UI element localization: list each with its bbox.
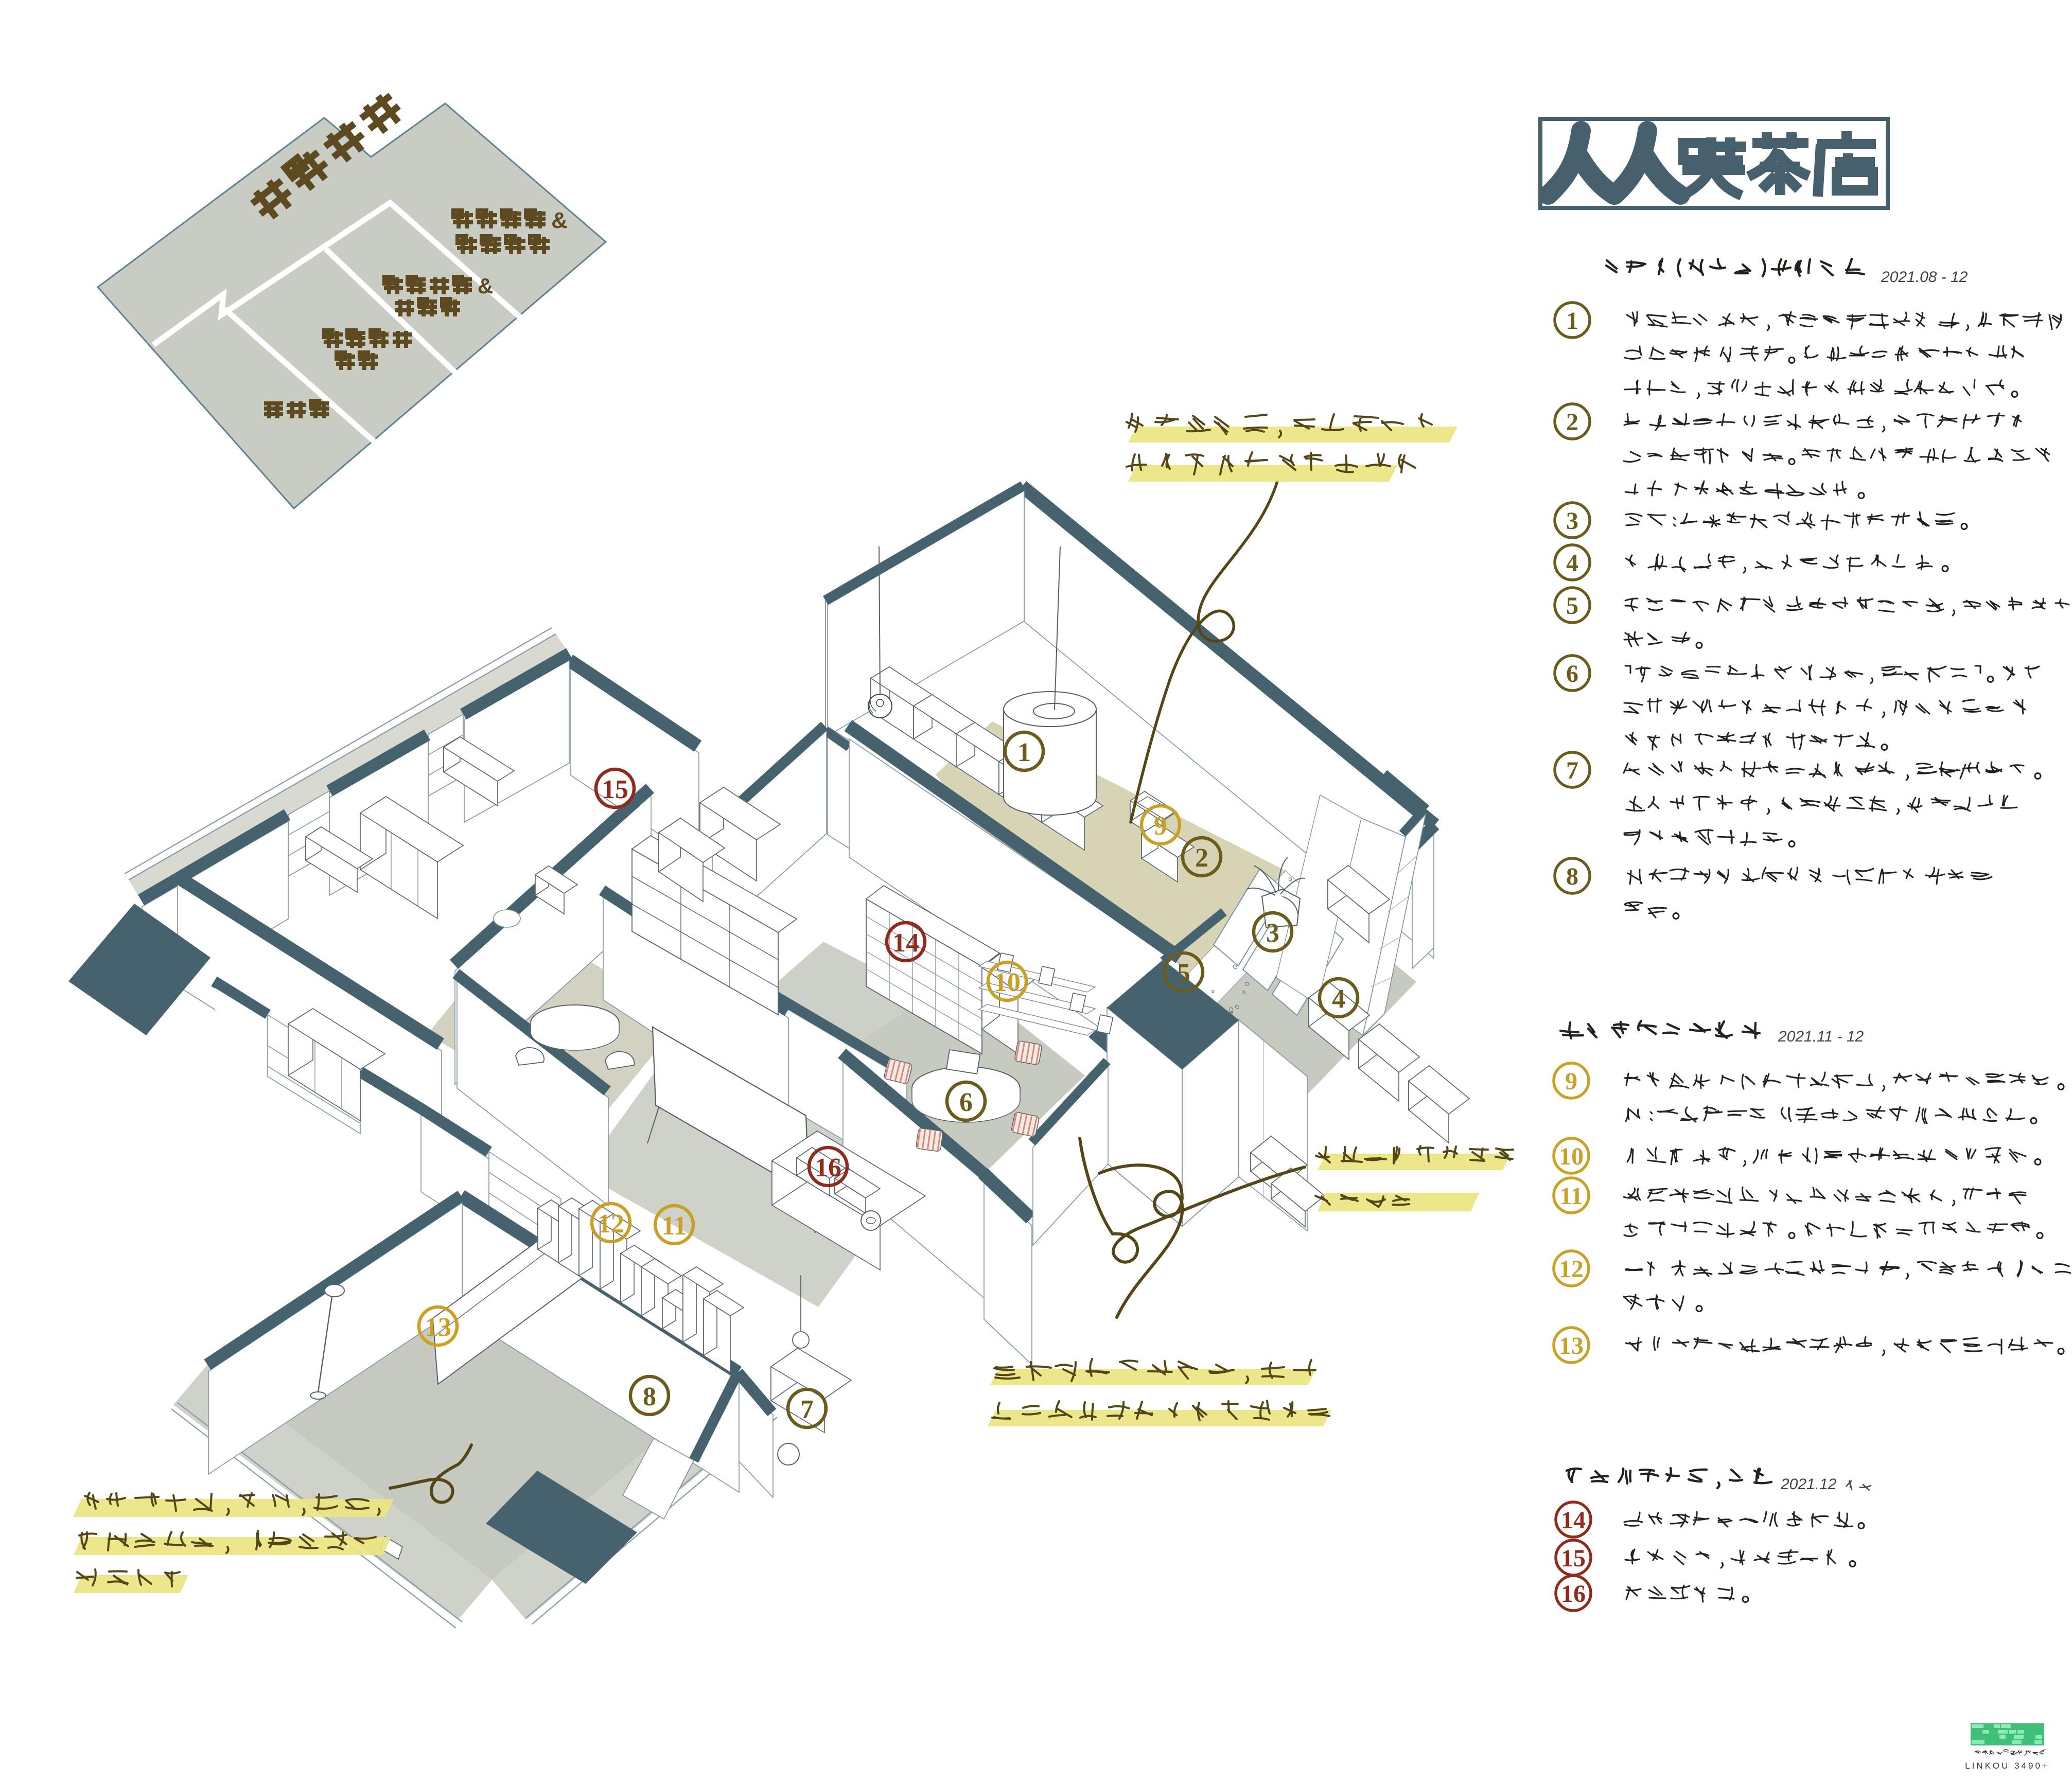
svg-text:1: 1 [1017, 738, 1031, 767]
svg-text:&: & [551, 208, 568, 233]
svg-text:9: 9 [1565, 1068, 1577, 1095]
svg-text:16: 16 [1561, 1580, 1586, 1608]
svg-text:10: 10 [994, 968, 1021, 997]
svg-text:12: 12 [598, 1209, 624, 1239]
svg-text:LINKOU 3490+: LINKOU 3490+ [1965, 1761, 2049, 1771]
svg-text:2: 2 [1195, 843, 1208, 873]
svg-text:7: 7 [800, 1395, 814, 1424]
svg-text:6: 6 [959, 1088, 973, 1117]
svg-text:10: 10 [1559, 1143, 1584, 1170]
svg-text:9: 9 [1154, 811, 1167, 841]
svg-text:14: 14 [1561, 1507, 1586, 1534]
svg-text:&: & [478, 274, 493, 298]
svg-text:11: 11 [1559, 1182, 1583, 1210]
svg-text:4: 4 [1566, 550, 1578, 577]
svg-text:6: 6 [1566, 660, 1578, 687]
svg-text:8: 8 [1566, 863, 1578, 890]
svg-text:1: 1 [1566, 307, 1578, 334]
svg-text:2: 2 [1566, 409, 1578, 436]
svg-text:15: 15 [1561, 1545, 1586, 1572]
svg-text:4: 4 [1332, 984, 1345, 1014]
svg-text:5: 5 [1177, 959, 1190, 988]
svg-text:3: 3 [1266, 919, 1279, 948]
svg-text:7: 7 [1566, 757, 1578, 784]
svg-text:12: 12 [1559, 1256, 1584, 1283]
svg-text:2021.08 - 12: 2021.08 - 12 [1881, 269, 1968, 286]
svg-text:11: 11 [661, 1211, 687, 1241]
svg-text:8: 8 [643, 1382, 656, 1411]
svg-text:14: 14 [892, 928, 919, 958]
svg-text:3: 3 [1566, 507, 1578, 535]
svg-text:2021.11 - 12: 2021.11 - 12 [1778, 1028, 1864, 1045]
svg-text:13: 13 [425, 1313, 451, 1342]
svg-text:13: 13 [1559, 1332, 1584, 1360]
svg-text:5: 5 [1566, 592, 1578, 620]
svg-text:2021.12: 2021.12 [1780, 1476, 1837, 1493]
svg-text:15: 15 [602, 775, 628, 804]
svg-text:16: 16 [815, 1153, 841, 1182]
